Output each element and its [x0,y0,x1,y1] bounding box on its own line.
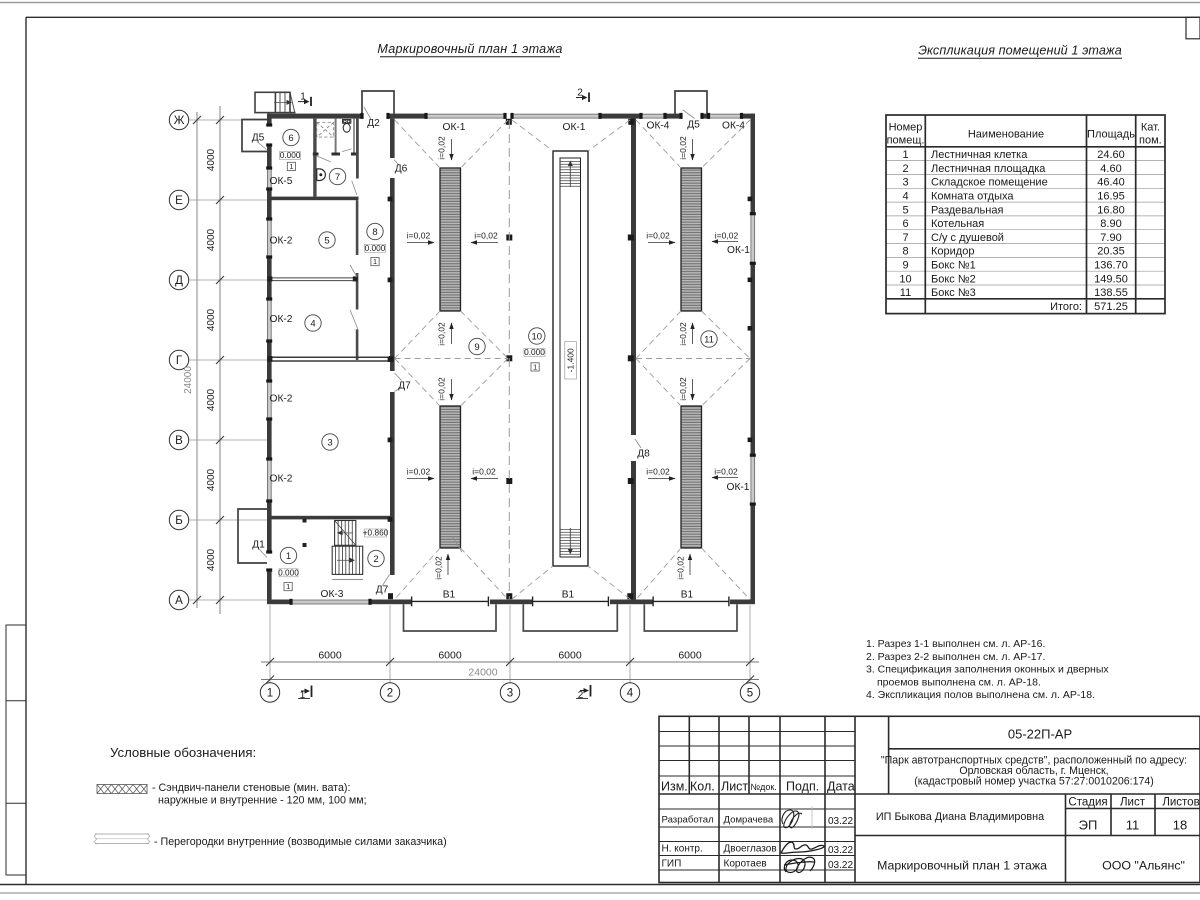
svg-text:Условные обозначения:: Условные обозначения: [110,745,256,760]
svg-text:Лист: Лист [721,780,748,794]
svg-text:1. Разрез 1-1 выполнен см. л.: 1. Разрез 1-1 выполнен см. л. АР-16. [866,638,1045,650]
svg-text:ОК-1: ОК-1 [563,122,586,133]
svg-text:Кат.: Кат. [1141,122,1160,134]
svg-text:6000: 6000 [318,650,342,662]
svg-text:Кол.: Кол. [690,780,715,794]
svg-text:Д: Д [175,275,183,287]
svg-text:1: 1 [373,257,377,266]
svg-text:Складское помещение: Складское помещение [931,177,1048,189]
svg-text:i=0,02: i=0,02 [646,467,670,477]
svg-text:Коридор: Коридор [931,246,974,258]
svg-text:5: 5 [902,204,908,216]
svg-text:Д2: Д2 [367,118,380,129]
svg-text:i=0,02: i=0,02 [437,322,447,346]
svg-text:- Перегородки внутренние (возв: - Перегородки внутренние (возводимые сил… [154,836,447,848]
svg-text:24.60: 24.60 [1097,149,1125,161]
svg-text:i=0,02: i=0,02 [434,556,444,580]
svg-text:8: 8 [372,227,377,238]
svg-text:0.000: 0.000 [278,567,299,577]
svg-text:03.22: 03.22 [828,860,853,871]
svg-text:05-22П-АР: 05-22П-АР [1008,727,1072,742]
svg-text:2. Разрез 2-2 выполнен см. л.: 2. Разрез 2-2 выполнен см. л. АР-17. [866,651,1045,663]
svg-text:Ж: Ж [174,115,185,127]
svg-text:11: 11 [1126,818,1140,833]
svg-text:С/у с душевой: С/у с душевой [931,232,1004,244]
svg-text:Б: Б [175,515,183,527]
svg-text:Изм.: Изм. [661,780,688,794]
svg-text:ИП Быкова Диана Владимировна: ИП Быкова Диана Владимировна [876,811,1044,823]
svg-text:2: 2 [373,554,378,565]
svg-text:1: 1 [300,690,306,701]
svg-text:11: 11 [704,335,714,346]
svg-text:В1: В1 [681,590,694,601]
svg-text:i=0,02: i=0,02 [646,231,670,241]
svg-text:ОК-2: ОК-2 [270,314,293,325]
svg-text:3: 3 [902,177,908,189]
svg-text:А: А [175,595,183,607]
svg-text:i=0,02: i=0,02 [678,136,688,160]
svg-text:2: 2 [578,690,584,701]
svg-text:4000: 4000 [206,148,217,171]
svg-text:1: 1 [286,582,290,591]
svg-text:i=0,02: i=0,02 [472,467,496,477]
svg-text:Комната отдыха: Комната отдыха [931,191,1014,203]
svg-text:571.25: 571.25 [1094,301,1128,313]
svg-text:(кадастровый номер участка 57:: (кадастровый номер участка 57:27:0010206… [914,776,1154,788]
svg-text:- Сэндвич-панели стеновые (мин: - Сэндвич-панели стеновые (мин. вата): [152,782,350,794]
svg-text:Д8: Д8 [637,449,650,460]
svg-text:20.35: 20.35 [1097,246,1125,258]
svg-text:i=0,02: i=0,02 [676,556,686,580]
svg-text:11: 11 [900,287,911,299]
svg-text:-1.400: -1.400 [566,348,576,372]
svg-text:18: 18 [1173,818,1187,833]
svg-text:8: 8 [902,246,908,258]
svg-text:2: 2 [577,88,583,99]
svg-text:10: 10 [899,273,911,285]
svg-text:6: 6 [288,133,293,144]
svg-text:4000: 4000 [206,548,217,571]
svg-text:ОК-2: ОК-2 [270,394,293,405]
svg-text:Маркировочный план 1 этажа: Маркировочный план 1 этажа [877,859,1047,873]
svg-text:1: 1 [533,363,537,372]
svg-text:В: В [175,435,183,447]
svg-text:ОК-2: ОК-2 [270,474,293,485]
svg-text:ООО "Альянс": ООО "Альянс" [1102,859,1185,873]
svg-text:ОК-1: ОК-1 [727,482,750,493]
svg-text:4000: 4000 [206,228,217,251]
svg-text:Подп.: Подп. [786,780,819,794]
svg-text:Номер: Номер [889,122,923,134]
svg-text:проемов выполнена см. л. АР-18: проемов выполнена см. л. АР-18. [877,676,1041,688]
svg-text:Коротаев: Коротаев [724,859,767,870]
svg-text:помещ.: помещ. [887,135,925,147]
svg-text:Разработал: Разработал [662,815,714,826]
svg-text:Д6: Д6 [395,164,408,175]
svg-text:В1: В1 [443,590,456,601]
svg-text:Д7: Д7 [376,585,389,596]
svg-text:Двоеглазов: Двоеглазов [724,844,777,855]
svg-text:03.22: 03.22 [828,845,853,856]
svg-text:6000: 6000 [678,650,702,662]
svg-text:136.70: 136.70 [1094,260,1128,272]
svg-text:1: 1 [289,162,293,171]
svg-text:4: 4 [902,191,908,203]
svg-text:Бокс №3: Бокс №3 [931,287,976,299]
svg-text:138.55: 138.55 [1094,287,1128,299]
svg-text:1: 1 [267,688,273,700]
svg-text:ОК-4: ОК-4 [722,121,745,132]
svg-text:Д7: Д7 [398,381,411,392]
svg-text:5: 5 [324,236,329,247]
svg-text:наружные и внутренние - 120 мм: наружные и внутренние - 120 мм, 100 мм; [158,795,367,807]
svg-text:Бокс №2: Бокс №2 [931,273,976,285]
svg-text:Стадия: Стадия [1068,797,1107,809]
svg-text:16.95: 16.95 [1097,191,1125,203]
svg-text:1: 1 [902,149,908,161]
svg-text:24000: 24000 [183,366,194,394]
svg-text:i=0,02: i=0,02 [407,231,431,241]
svg-text:24000: 24000 [468,667,497,679]
svg-text:Наименование: Наименование [968,129,1044,141]
svg-text:03.22: 03.22 [828,816,853,827]
svg-text:ЭП: ЭП [1079,818,1098,833]
svg-text:7.90: 7.90 [1100,232,1121,244]
svg-text:Лист: Лист [1120,797,1146,809]
svg-text:В1: В1 [562,590,575,601]
svg-text:4000: 4000 [206,468,217,491]
svg-text:i=0,02: i=0,02 [678,377,688,401]
svg-text:Е: Е [175,195,183,207]
svg-text:i=0,02: i=0,02 [407,467,431,477]
svg-text:0.000: 0.000 [365,243,386,253]
svg-text:ОК-2: ОК-2 [270,236,293,247]
svg-text:4: 4 [310,319,315,330]
svg-text:Н. контр.: Н. контр. [662,844,703,855]
svg-text:Лестничная площадка: Лестничная площадка [931,163,1046,175]
svg-text:9: 9 [474,342,479,353]
svg-text:i=0,02: i=0,02 [715,231,739,241]
svg-text:1: 1 [286,551,291,562]
svg-text:5: 5 [747,688,753,700]
svg-text:6000: 6000 [438,650,462,662]
svg-text:i=0,02: i=0,02 [437,136,447,160]
svg-text:10: 10 [532,332,543,343]
svg-text:ОК-5: ОК-5 [270,176,293,187]
svg-text:3: 3 [327,438,332,449]
svg-text:3. Спецификация заполнения око: 3. Спецификация заполнения оконных и две… [866,664,1109,676]
svg-text:ОК-4: ОК-4 [647,121,670,132]
svg-text:Г: Г [176,355,183,367]
svg-text:Котельная: Котельная [931,218,984,230]
svg-text:2: 2 [387,688,393,700]
svg-text:0.000: 0.000 [524,347,545,357]
svg-text:Раздевальная: Раздевальная [931,204,1003,216]
svg-text:46.40: 46.40 [1097,177,1125,189]
svg-text:16.80: 16.80 [1097,204,1125,216]
svg-text:+0.860: +0.860 [363,528,389,538]
svg-text:3: 3 [507,688,513,700]
svg-text:ОК-1: ОК-1 [443,122,466,133]
svg-text:8.90: 8.90 [1100,218,1121,230]
svg-text:Экспликация помещений 1 этажа: Экспликация помещений 1 этажа [918,44,1122,58]
svg-text:7: 7 [335,172,340,183]
svg-text:0.000: 0.000 [280,150,301,160]
svg-text:Д5: Д5 [252,133,265,144]
svg-text:9: 9 [902,260,908,272]
svg-text:7: 7 [902,232,908,244]
svg-text:6000: 6000 [558,650,582,662]
svg-text:Лестничная клетка: Лестничная клетка [931,149,1028,161]
svg-text:6: 6 [902,218,908,230]
svg-text:i=0,02: i=0,02 [678,322,688,346]
svg-text:Дата: Дата [827,780,855,794]
svg-text:Площадь: Площадь [1087,129,1135,141]
svg-text:4000: 4000 [206,308,217,331]
svg-text:i=0,02: i=0,02 [474,231,498,241]
svg-text:4.60: 4.60 [1100,163,1121,175]
svg-text:4. Экспликация полов выполнена: 4. Экспликация полов выполнена см. л. АР… [866,689,1095,701]
svg-text:Маркировочный план 1 этажа: Маркировочный план 1 этажа [377,42,562,56]
svg-text:1: 1 [300,92,306,103]
svg-text:4: 4 [627,688,634,700]
svg-text:ОК-3: ОК-3 [321,589,344,600]
svg-text:Листов: Листов [1162,797,1199,809]
svg-text:ОК-1: ОК-1 [727,245,750,256]
svg-text:№док.: №док. [751,782,777,792]
svg-text:Бокс №1: Бокс №1 [931,260,976,272]
svg-text:i=0,02: i=0,02 [437,377,447,401]
svg-text:Д5: Д5 [687,120,700,131]
svg-text:149.50: 149.50 [1094,273,1128,285]
svg-text:4000: 4000 [206,388,217,411]
svg-text:2: 2 [902,163,908,175]
svg-text:Д1: Д1 [252,540,265,551]
svg-text:Итого:: Итого: [1050,301,1082,313]
svg-text:пом.: пом. [1139,135,1162,147]
svg-text:Домрачева: Домрачева [724,815,774,826]
svg-text:i=0,02: i=0,02 [714,467,738,477]
svg-text:ГИП: ГИП [662,859,682,870]
